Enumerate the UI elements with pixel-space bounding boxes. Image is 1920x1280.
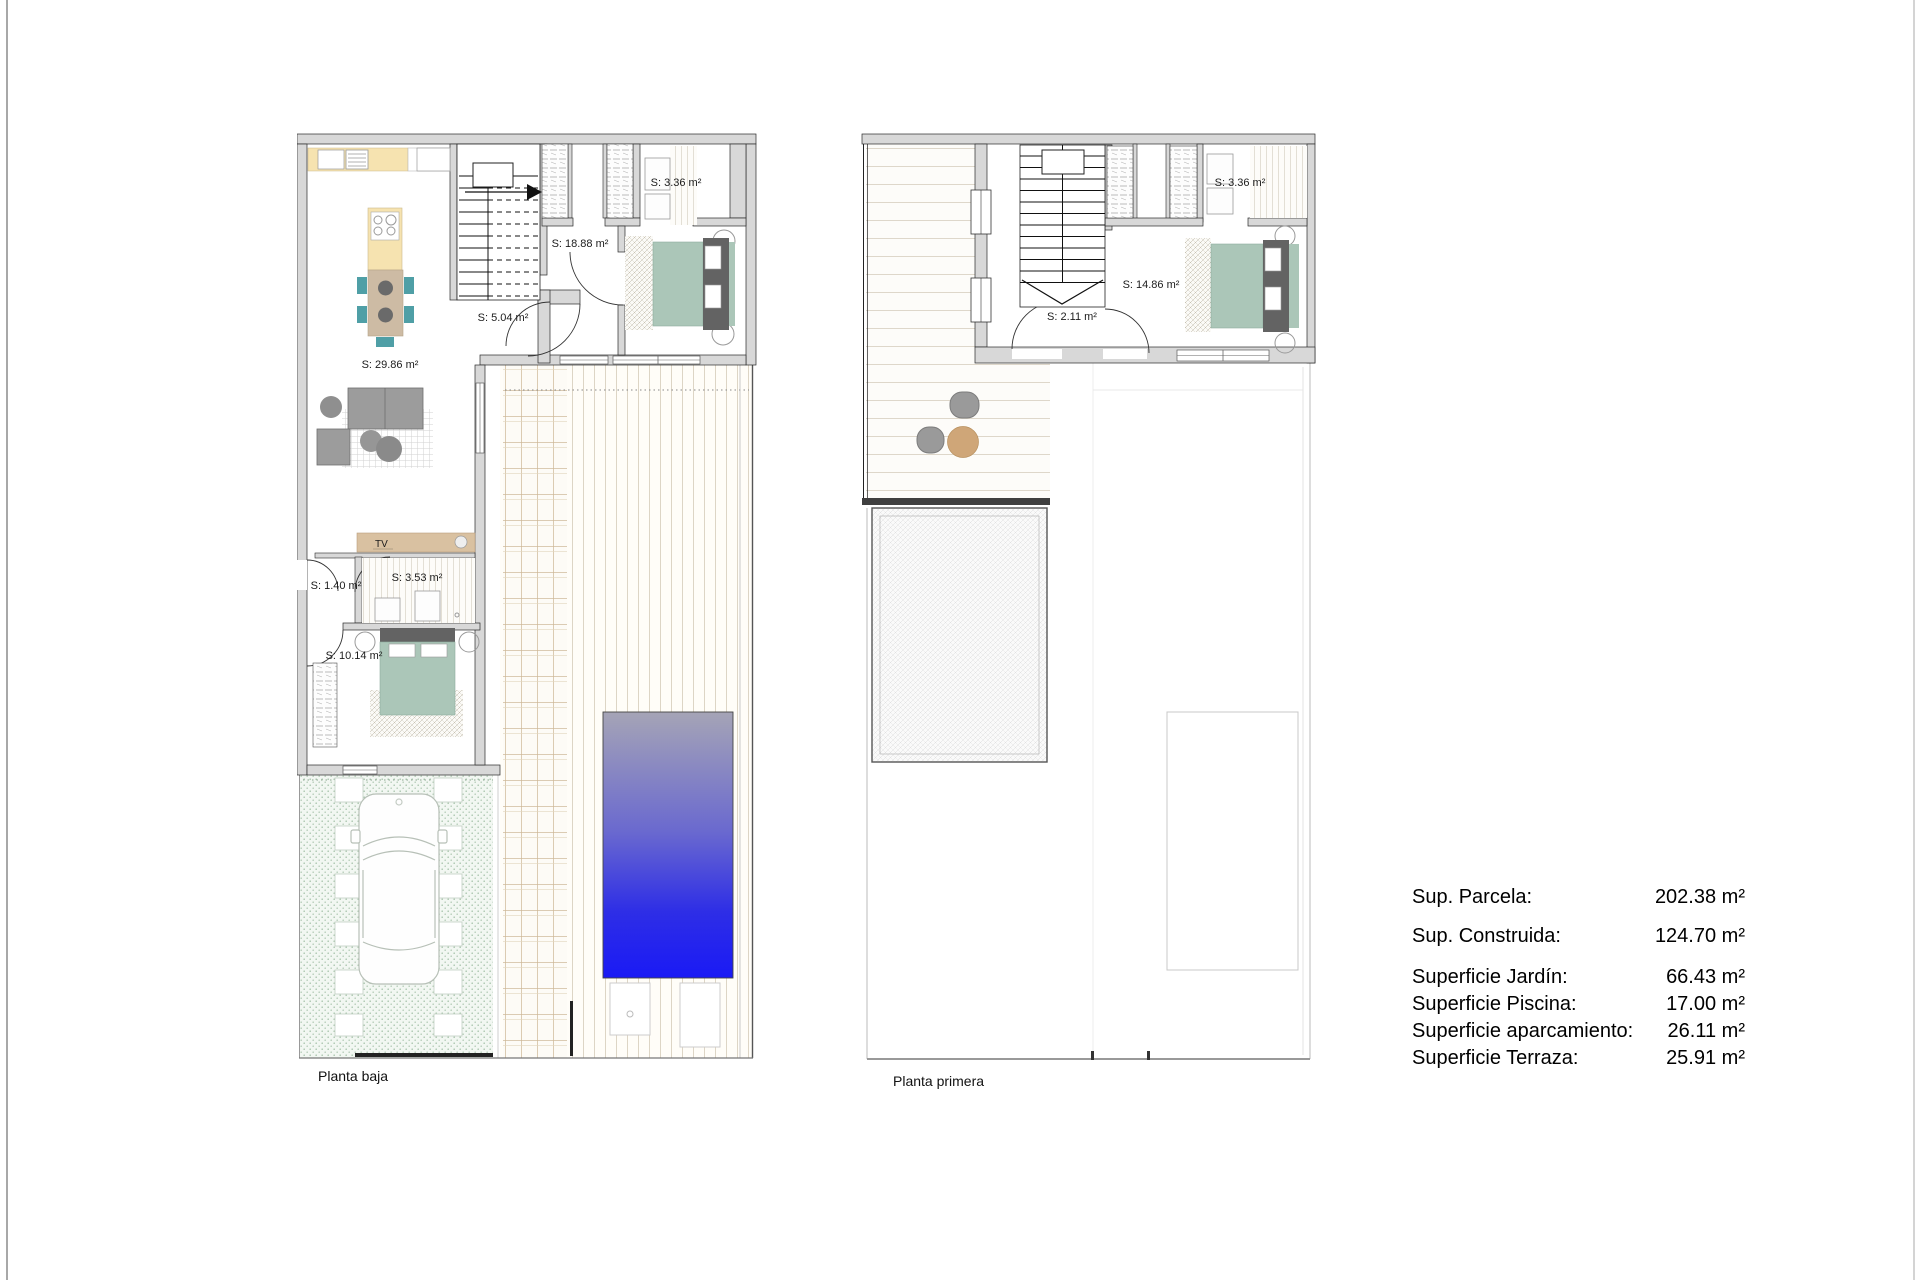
pillow <box>1265 287 1281 310</box>
summary-row-jardin: Superficie Jardín: 66.43 m² <box>1412 966 1745 990</box>
room-label-closet: S: 3.36 m² <box>651 177 702 189</box>
ground-plan-caption: Planta baja <box>318 1068 388 1084</box>
first-floor-plan: S: 3.36 m² S: 14.86 m² S: 2.11 m² <box>858 130 1318 1078</box>
summary-label: Sup. Construida: <box>1412 925 1561 949</box>
ground-staircase <box>457 144 542 300</box>
summary-label: Superficie Terraza: <box>1412 1047 1578 1071</box>
wardrobe <box>313 663 337 747</box>
bed <box>653 242 703 326</box>
roof-hatch-area <box>872 508 1047 762</box>
terrace-chair <box>917 427 944 453</box>
first-staircase <box>1020 145 1105 307</box>
pillow <box>389 644 415 657</box>
pillow <box>1265 248 1281 271</box>
summary-row-piscina: Superficie Piscina: 17.00 m² <box>1412 993 1745 1017</box>
side-door-gap <box>297 560 307 590</box>
car <box>351 794 447 984</box>
summary-row-parcela: Sup. Parcela: 202.38 m² <box>1412 886 1745 910</box>
wardrobe <box>542 144 568 218</box>
room-label-vestibule: S: 5.04 m² <box>478 312 529 324</box>
room-label-bedroom: S: 14.86 m² <box>1123 279 1180 291</box>
right-edge-line <box>1913 0 1915 1280</box>
plate <box>378 281 393 296</box>
room-label-landing: S: 2.11 m² <box>1047 311 1097 323</box>
summary-value: 26.11 m² <box>1668 1020 1745 1044</box>
kitchen <box>308 148 450 347</box>
pool-void-outline <box>1167 712 1298 970</box>
pillow <box>705 285 721 308</box>
room-label-hall: S: 18.88 m² <box>552 238 609 250</box>
left-edge-line <box>6 0 8 1280</box>
toilet <box>375 598 400 621</box>
bed-bench <box>1289 244 1299 328</box>
plan-sheet: TV <box>0 0 1920 1280</box>
deck-gate-post <box>570 1001 573 1056</box>
ground-garden <box>300 768 499 1058</box>
terrace-chair <box>950 392 979 418</box>
summary-row-aparcamiento: Superficie aparcamiento: 26.11 m² <box>1412 1020 1745 1044</box>
wardrobe <box>1170 146 1197 218</box>
tv-unit-detail <box>455 536 467 548</box>
terrace-table <box>948 427 979 458</box>
fridge <box>417 148 450 171</box>
tv-label: TV <box>375 539 388 550</box>
room-label-living: S: 29.86 m² <box>362 359 419 371</box>
summary-row-terraza: Superficie Terraza: 25.91 m² <box>1412 1047 1745 1071</box>
ground-bedroom1 <box>625 230 735 345</box>
shower <box>415 591 440 621</box>
bed-rug <box>625 236 653 330</box>
dining-table <box>368 270 403 336</box>
first-plan-caption: Planta primera <box>893 1073 984 1089</box>
pillow <box>421 644 447 657</box>
sofa <box>348 388 423 429</box>
summary-value: 25.91 m² <box>1666 1047 1745 1071</box>
oven <box>346 150 368 169</box>
wardrobe <box>607 144 633 218</box>
summary-label: Sup. Parcela: <box>1412 886 1532 910</box>
coffee-table <box>376 436 402 462</box>
summary-row-construida: Sup. Construida: 124.70 m² <box>1412 925 1745 949</box>
ground-bedroom2 <box>313 628 479 747</box>
plate <box>378 308 393 323</box>
first-door-arcs <box>1012 301 1149 353</box>
ground-floor-plan: TV <box>297 130 757 1078</box>
bathroom <box>362 558 475 623</box>
summary-label: Superficie Jardín: <box>1412 966 1568 990</box>
headboard <box>380 628 455 642</box>
summary-value: 202.38 m² <box>1655 886 1745 910</box>
summary-value: 66.43 m² <box>1666 966 1745 990</box>
ground-walkway <box>503 365 567 1058</box>
terrace-parapet <box>862 498 1050 505</box>
bed-rug <box>1185 238 1211 332</box>
living-room: TV <box>317 388 475 552</box>
room-label-closet: S: 3.36 m² <box>1215 177 1266 189</box>
summary-label: Superficie aparcamiento: <box>1412 1020 1633 1044</box>
pillow <box>705 246 721 269</box>
bed <box>1211 244 1263 328</box>
pool-side-pad <box>680 983 720 1047</box>
side-table <box>320 396 342 418</box>
summary-value: 17.00 m² <box>1666 993 1745 1017</box>
sink <box>318 150 344 169</box>
wardrobe <box>1107 146 1133 218</box>
summary-value: 124.70 m² <box>1655 925 1745 949</box>
pool-side-pad <box>610 983 650 1035</box>
armchair <box>317 429 350 465</box>
bedside-lamp <box>355 632 375 652</box>
summary-label: Superficie Piscina: <box>1412 993 1577 1017</box>
first-bedroom <box>1185 226 1299 353</box>
bed-bench <box>729 242 735 326</box>
garden-fence <box>355 1053 493 1057</box>
room-label-bedroom: S: 10.14 m² <box>326 650 383 662</box>
room-label-bathroom: S: 3.53 m² <box>392 572 443 584</box>
room-label-corridor: S: 1.40 m² <box>311 580 362 592</box>
